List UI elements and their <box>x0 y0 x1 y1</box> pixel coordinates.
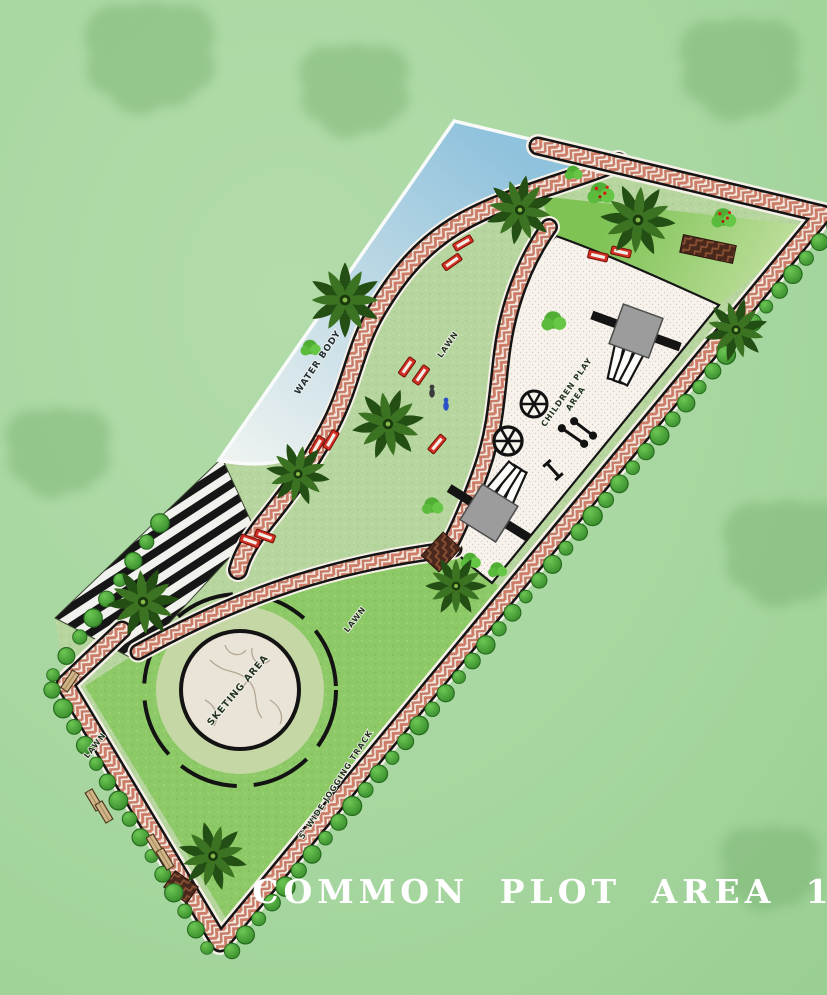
hedge-shrub-icon <box>571 524 588 541</box>
hedge-shrub-icon <box>319 831 333 845</box>
hedge-shrub-icon <box>665 412 680 427</box>
hedge-shrub-icon <box>303 845 321 863</box>
hedge-shrub-icon <box>99 774 115 790</box>
hedge-shrub-icon <box>465 653 481 669</box>
hedge-shrub-icon <box>583 506 602 525</box>
hedge-shrub-icon <box>519 590 532 603</box>
hedge-shrub-icon <box>201 942 214 955</box>
hedge-shrub-icon <box>343 797 362 816</box>
hedge-shrub-icon <box>598 492 613 507</box>
hedge-shrub-icon <box>760 300 773 313</box>
hedge-shrub-icon <box>331 814 347 830</box>
hedge-shrub-icon <box>705 363 721 379</box>
hedge-shrub-icon <box>452 671 465 684</box>
hedge-shrub-icon <box>188 921 205 938</box>
hedge-shrub-icon <box>386 751 399 764</box>
hedge-shrub-icon <box>224 943 239 958</box>
hedge-shrub-icon <box>165 884 183 902</box>
site-plan-drawing: WATER BODY LAWN LAWN LAWN CHILDREN PLAY … <box>0 0 827 995</box>
hedge-shrub-icon <box>504 604 521 621</box>
hedge-shrub-icon <box>58 648 75 665</box>
hedge-shrub-icon <box>626 461 640 475</box>
hedge-shrub-icon <box>799 251 813 265</box>
hedge-shrub-icon <box>109 791 128 810</box>
hedge-shrub-icon <box>477 636 495 654</box>
hedge-shrub-icon <box>677 395 694 412</box>
hedge-shrub-icon <box>425 702 440 717</box>
hedge-shrub-icon <box>772 283 788 299</box>
person-icon <box>443 398 449 411</box>
hedge-shrub-icon <box>559 541 573 555</box>
hedge-shrub-icon <box>492 622 506 636</box>
hedge-shrub-icon <box>437 685 454 702</box>
hedge-shrub-icon <box>544 555 562 573</box>
merry-go-round-icon <box>521 391 547 417</box>
hedge-shrub-icon <box>178 904 192 918</box>
hedge-shrub-icon <box>531 573 546 588</box>
hedge-shrub-icon <box>358 782 373 797</box>
hedge-shrub-icon <box>370 765 387 782</box>
hedge-shrub-icon <box>610 475 628 493</box>
hedge-shrub-icon <box>139 535 154 550</box>
merry-go-round-icon <box>494 427 522 455</box>
hedge-shrub-icon <box>90 757 103 770</box>
plan-title: COMMON PLOT AREA 1 <box>252 872 827 911</box>
hedge-shrub-icon <box>47 669 60 682</box>
person-icon <box>429 385 435 398</box>
hedge-shrub-icon <box>67 719 82 734</box>
hedge-shrub-icon <box>125 552 142 569</box>
hedge-shrub-icon <box>410 716 429 735</box>
hedge-shrub-icon <box>236 926 254 944</box>
hedge-shrub-icon <box>54 699 73 718</box>
hedge-shrub-icon <box>44 682 60 698</box>
hedge-shrub-icon <box>252 912 266 926</box>
hedge-shrub-icon <box>73 630 87 644</box>
landscape-site-plan: WATER BODY LAWN LAWN LAWN CHILDREN PLAY … <box>0 0 827 995</box>
hedge-shrub-icon <box>398 734 414 750</box>
hedge-shrub-icon <box>151 514 170 533</box>
hedge-shrub-icon <box>638 444 654 460</box>
hedge-shrub-icon <box>811 234 827 251</box>
hedge-shrub-icon <box>84 609 102 627</box>
hedge-shrub-icon <box>693 380 706 393</box>
hedge-shrub-icon <box>122 812 137 827</box>
hedge-shrub-icon <box>784 265 802 283</box>
hedge-shrub-icon <box>650 426 669 445</box>
